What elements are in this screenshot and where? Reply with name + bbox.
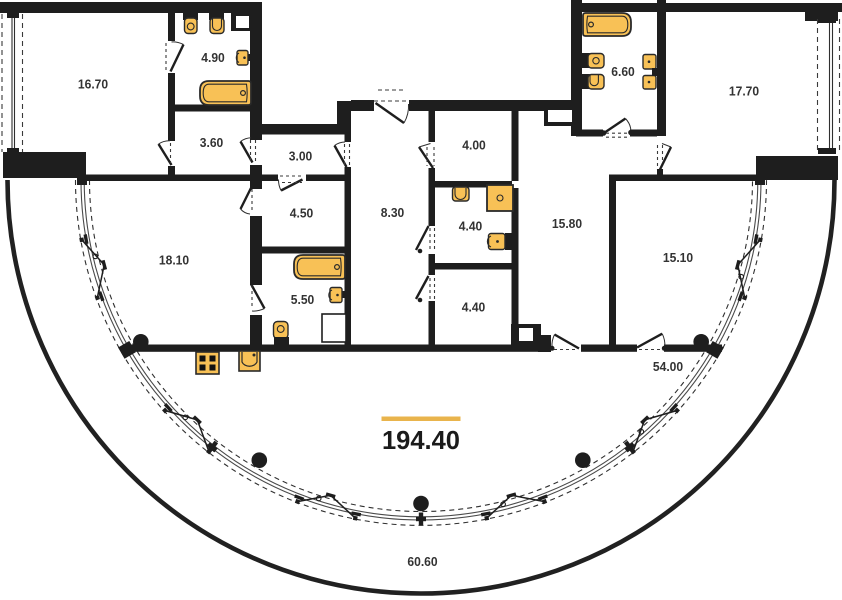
svg-text:3.60: 3.60 [200, 136, 224, 150]
svg-text:4.00: 4.00 [462, 138, 486, 152]
svg-text:17.70: 17.70 [729, 84, 759, 98]
svg-text:3.00: 3.00 [289, 149, 313, 163]
svg-text:4.40: 4.40 [462, 300, 486, 314]
svg-text:16.70: 16.70 [78, 77, 108, 91]
svg-text:60.60: 60.60 [407, 555, 437, 569]
svg-text:15.10: 15.10 [663, 251, 693, 265]
svg-text:4.50: 4.50 [290, 206, 314, 220]
svg-text:15.80: 15.80 [552, 217, 582, 231]
svg-text:8.30: 8.30 [381, 206, 405, 220]
svg-text:5.50: 5.50 [291, 293, 315, 307]
svg-text:54.00: 54.00 [653, 360, 683, 374]
svg-text:18.10: 18.10 [159, 253, 189, 267]
svg-text:4.90: 4.90 [201, 51, 225, 65]
svg-text:4.40: 4.40 [459, 219, 483, 233]
svg-text:194.40: 194.40 [382, 427, 460, 455]
svg-text:6.60: 6.60 [611, 65, 635, 79]
